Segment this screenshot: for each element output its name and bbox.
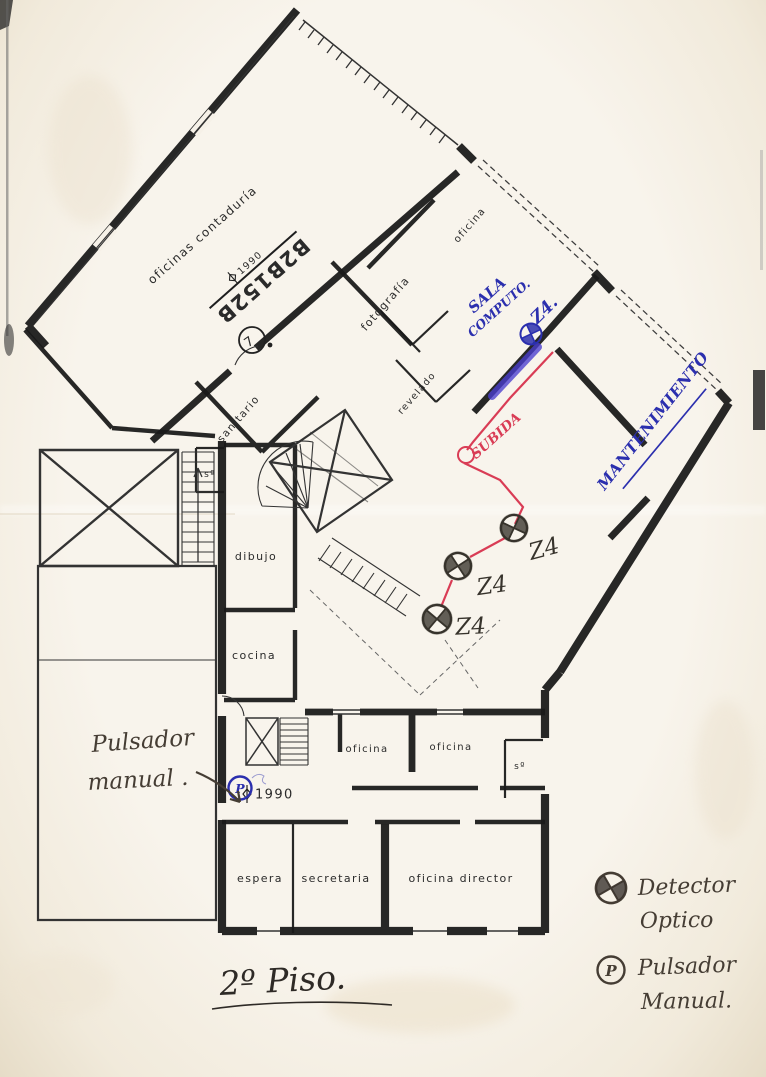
optical-detector-icon xyxy=(421,603,454,636)
zone-label-z4: Z4 xyxy=(454,613,487,641)
pulsador-note-line2: manual . xyxy=(87,765,189,796)
room-label-revelado: revelado xyxy=(396,370,439,417)
room-label-oficina-top: oficina xyxy=(452,206,488,246)
blue-highlighted-wall xyxy=(492,347,538,396)
room-label-oficina-right: oficina xyxy=(430,742,473,753)
room-label-secretaria: secretaria xyxy=(302,872,371,885)
inner-thick-walls xyxy=(152,172,648,772)
floor-plan-svg: oficinas contaduría oficina fotografía r… xyxy=(0,0,766,1077)
room-label-fotografia: fotografía xyxy=(358,274,412,334)
room-label-oficina-left: oficina xyxy=(346,744,389,755)
room-label-s-left: sº xyxy=(204,470,216,480)
construction-dashed-lines xyxy=(310,590,500,695)
legend-pulsador-line1: Pulsador xyxy=(636,953,738,982)
pulsador-note-line1: Pulsador xyxy=(90,725,197,758)
room-labels: oficinas contaduría oficina fotografía r… xyxy=(145,183,526,885)
optical-detector-legend-icon xyxy=(593,870,630,907)
mantenimiento-label: MANTENIMIENTO xyxy=(592,348,712,494)
legend: Detector Optico P Pulsador Manual. xyxy=(593,870,738,1015)
plan-title-text: 2º Piso. xyxy=(217,957,346,1003)
room-label-cocina: cocina xyxy=(232,649,276,662)
room-label-oficina-director: oficina director xyxy=(408,872,513,885)
scanned-floor-plan-page: oficinas contaduría oficina fotografía r… xyxy=(0,0,766,1077)
stair-run xyxy=(318,538,420,616)
legend-callpoint-letter: P xyxy=(604,962,617,980)
legend-pulsador-line2: Manual. xyxy=(640,988,733,1015)
edge-blob xyxy=(753,370,765,430)
zone-label-z4: Z4 xyxy=(474,571,509,601)
manual-callpoint-legend-icon: P xyxy=(598,957,625,984)
optical-detector-icon xyxy=(441,549,475,583)
window-gap xyxy=(93,225,117,251)
manual-callpoint-letter: P xyxy=(234,781,245,796)
legend-detector-line1: Detector xyxy=(636,873,737,901)
lower-stair-and-shaft xyxy=(246,718,308,765)
circled-digit-value: 7 xyxy=(242,333,259,351)
room-label-dibujo: dibujo xyxy=(235,550,277,563)
room-label-espera: espera xyxy=(237,872,283,885)
room-label-s-right: sº xyxy=(514,762,526,772)
pencil-detectors: Z4 Z4 Z4 xyxy=(421,510,563,641)
room-label-sanitario: sanitario xyxy=(215,393,262,445)
legend-detector-line2: Optico xyxy=(640,908,714,934)
level-lower-value: 1990 xyxy=(255,788,294,803)
zone-label-z4: Z4 xyxy=(525,533,562,566)
